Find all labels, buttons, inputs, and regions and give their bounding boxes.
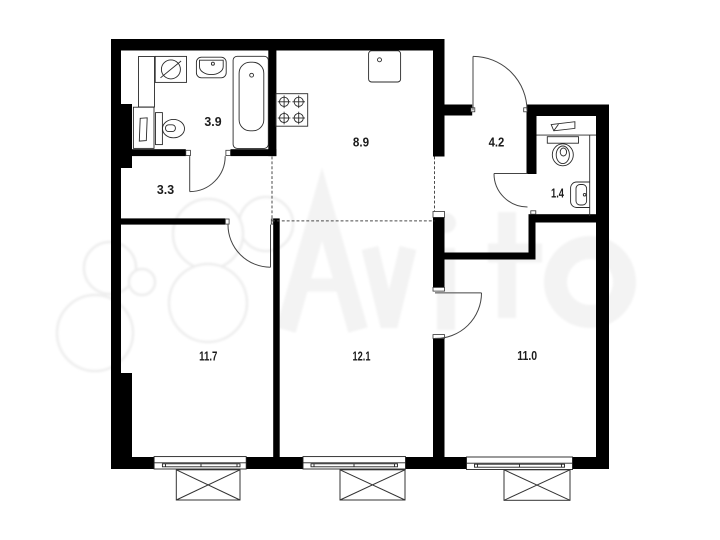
svg-text:4.2: 4.2 [489,136,505,150]
svg-text:3.3: 3.3 [157,183,174,197]
svg-text:11.7: 11.7 [199,349,217,363]
svg-text:11.0: 11.0 [517,349,537,363]
svg-text:8.9: 8.9 [353,136,369,150]
svg-text:1.4: 1.4 [551,187,564,201]
svg-text:3.9: 3.9 [204,115,221,129]
svg-text:12.1: 12.1 [353,349,371,363]
